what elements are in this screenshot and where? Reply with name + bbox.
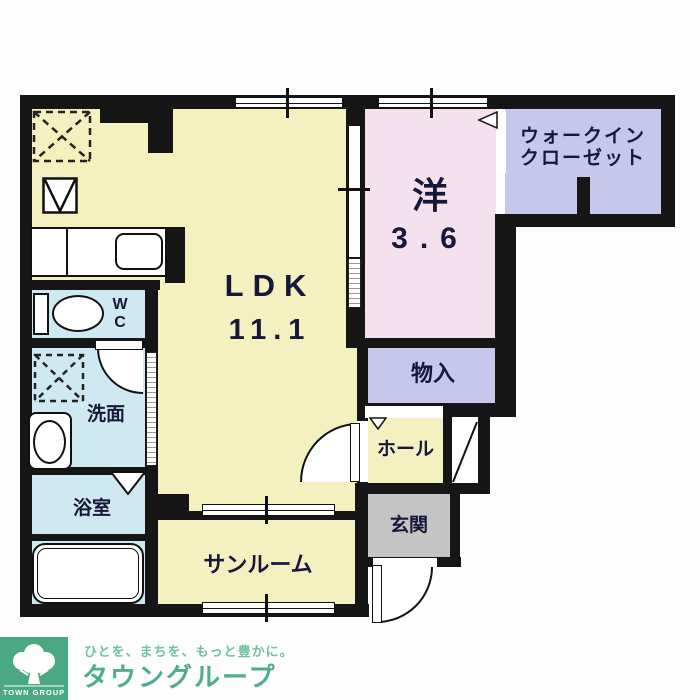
toilet-tank [33, 293, 49, 335]
label-sunroom: サンルーム [158, 552, 358, 577]
window-western-top [378, 97, 488, 108]
wall-cabinet-right [478, 407, 490, 493]
stove-icon [42, 177, 78, 214]
washbasin-bowl [33, 420, 66, 464]
window-tick [265, 496, 268, 524]
wall-sunroom-block [150, 494, 189, 513]
sliding-door-tick [338, 188, 370, 191]
refrigerator-space-icon [32, 110, 92, 163]
window-tick [265, 594, 268, 622]
door-marker-hall-icon [369, 417, 387, 430]
door-arc-entrance [377, 567, 433, 623]
sliding-door-washroom [146, 352, 157, 466]
window-sunroom-top [202, 504, 335, 516]
wall-hall-step [357, 483, 451, 494]
window-glass-line [236, 103, 342, 104]
washing-machine-space-icon [33, 353, 85, 403]
wall-wic-right [661, 95, 675, 227]
window-sunroom-bottom [202, 602, 335, 614]
sliding-door-ldk-western [348, 125, 361, 258]
door-leaf-wc [95, 340, 143, 350]
wall-cabinet-bottom [443, 483, 490, 494]
wall-western-right [495, 214, 516, 417]
window-ldk-top [235, 97, 343, 108]
floorplan-image: LDK 11.1 洋 3.6 ウォークイン クローゼット 物入 ホール 玄関 サ… [0, 0, 700, 700]
door-marker-wic-icon [477, 111, 498, 129]
label-western-name: 洋 [380, 175, 480, 216]
bathtub-inner-line [37, 548, 139, 599]
shoe-cabinet-icon [452, 421, 478, 483]
label-washroom: 洗面 [76, 404, 136, 426]
window-glass-line [203, 608, 334, 609]
window-glass-line [379, 103, 487, 104]
wall-tub-edge [30, 534, 145, 541]
label-wic-line1: ウォークイン [505, 126, 661, 148]
footer-company-name: タウングループ [82, 657, 276, 694]
wall-wc-top [20, 280, 160, 290]
door-leaf-ldk-hall [350, 423, 360, 482]
label-bathroom: 浴室 [62, 498, 122, 520]
door-marker-bathroom-icon [110, 471, 146, 495]
label-wic-line2: クローゼット [505, 148, 661, 170]
toilet-bowl [52, 295, 104, 332]
door-leaf-entrance [372, 565, 382, 623]
kitchen-sink [115, 233, 163, 270]
label-ldk-name: LDK [168, 268, 372, 304]
wall-wic-stub [577, 177, 590, 217]
window-tick [286, 88, 289, 118]
label-hall: ホール [366, 439, 445, 461]
bathtub [32, 543, 144, 604]
label-wc-top: W [106, 296, 134, 314]
window-tick [430, 88, 433, 118]
window-glass-line [203, 510, 334, 511]
label-storage: 物入 [368, 361, 498, 386]
svg-text:TOWN GROUP: TOWN GROUP [3, 688, 65, 697]
label-entrance: 玄関 [368, 515, 450, 537]
wall-entrance-left [355, 483, 368, 608]
kitchen-counter-divider [66, 229, 68, 275]
doorway-entrance [373, 558, 437, 567]
label-wc-bottom: C [106, 314, 134, 332]
wall-kitchen-side-stub [148, 107, 173, 153]
label-western-size: 3.6 [378, 222, 482, 257]
town-group-logo: TOWN GROUP [0, 637, 68, 700]
label-ldk-size: 11.1 [168, 314, 372, 347]
